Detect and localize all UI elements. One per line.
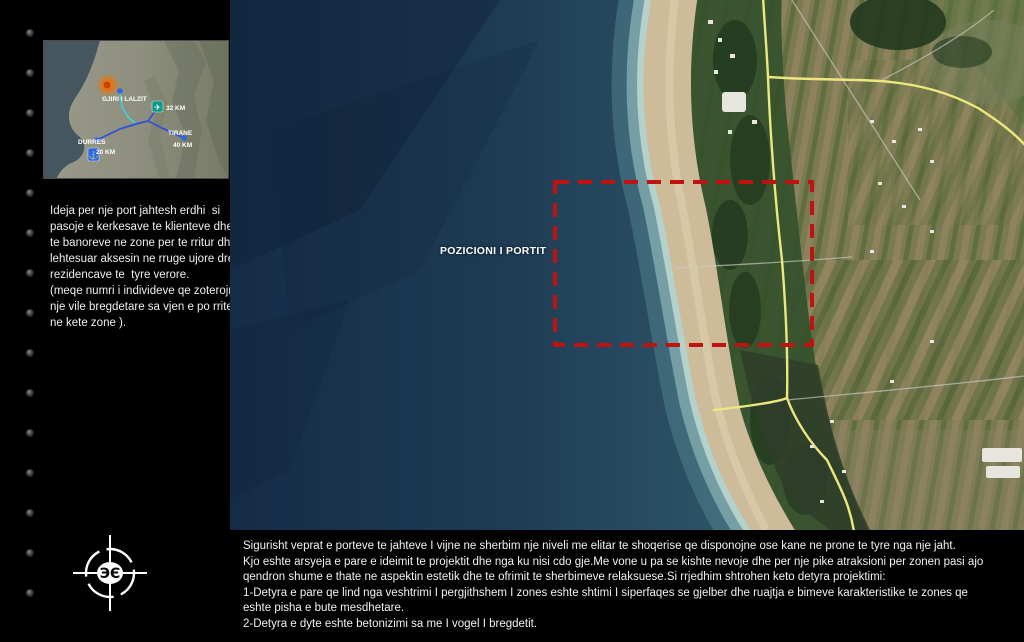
svg-text:✈: ✈ (154, 103, 161, 112)
binding-dot (26, 389, 34, 397)
binding-dot (26, 309, 34, 317)
binding-dot (26, 69, 34, 77)
binding-dot (26, 469, 34, 477)
satellite-graphic (230, 0, 1024, 530)
site-marker-icon (97, 74, 119, 96)
binding-dot (26, 29, 34, 37)
inset-map-graphic: ✈ ⚓ GJIRI I LALZIT 32 KM TIRANE 40 KM DU… (44, 41, 228, 178)
durres-label: DURRES (78, 139, 106, 146)
presentation-slide: ✈ ⚓ GJIRI I LALZIT 32 KM TIRANE 40 KM DU… (0, 0, 1024, 642)
binding-dot (26, 149, 34, 157)
satellite-map: POZICIONI I PORTIT (230, 0, 1024, 530)
binding-dot (26, 229, 34, 237)
binding-dot (26, 269, 34, 277)
site-label: GJIRI I LALZIT (102, 96, 147, 103)
binding-dot (26, 549, 34, 557)
binding-dot (26, 589, 34, 597)
tirane-label: TIRANE (168, 130, 193, 137)
binding-dots (26, 29, 34, 597)
tirane-distance-label: 40 KM (173, 142, 192, 149)
binding-dot (26, 109, 34, 117)
site-pin-icon (117, 88, 123, 94)
svg-text:ЭЄ: ЭЄ (100, 566, 121, 582)
airport-distance-label: 32 KM (166, 105, 185, 112)
binding-dot (26, 349, 34, 357)
binding-dot (26, 429, 34, 437)
durres-distance-label: 20 KM (96, 149, 115, 156)
logo-crosshair: ЭЄ (58, 532, 168, 632)
airport-icon: ✈ (152, 101, 163, 112)
intro-paragraph: Ideja per nje port jahtesh erdhi si paso… (50, 203, 242, 331)
port-position-label: POZICIONI I PORTIT (440, 245, 546, 257)
crosshair-icon: ЭЄ (58, 532, 168, 632)
binding-dot (26, 509, 34, 517)
description-paragraph: Sigurisht veprat e porteve te jahteve I … (243, 539, 1018, 632)
location-inset-map: ✈ ⚓ GJIRI I LALZIT 32 KM TIRANE 40 KM DU… (43, 40, 229, 179)
binding-dot (26, 189, 34, 197)
